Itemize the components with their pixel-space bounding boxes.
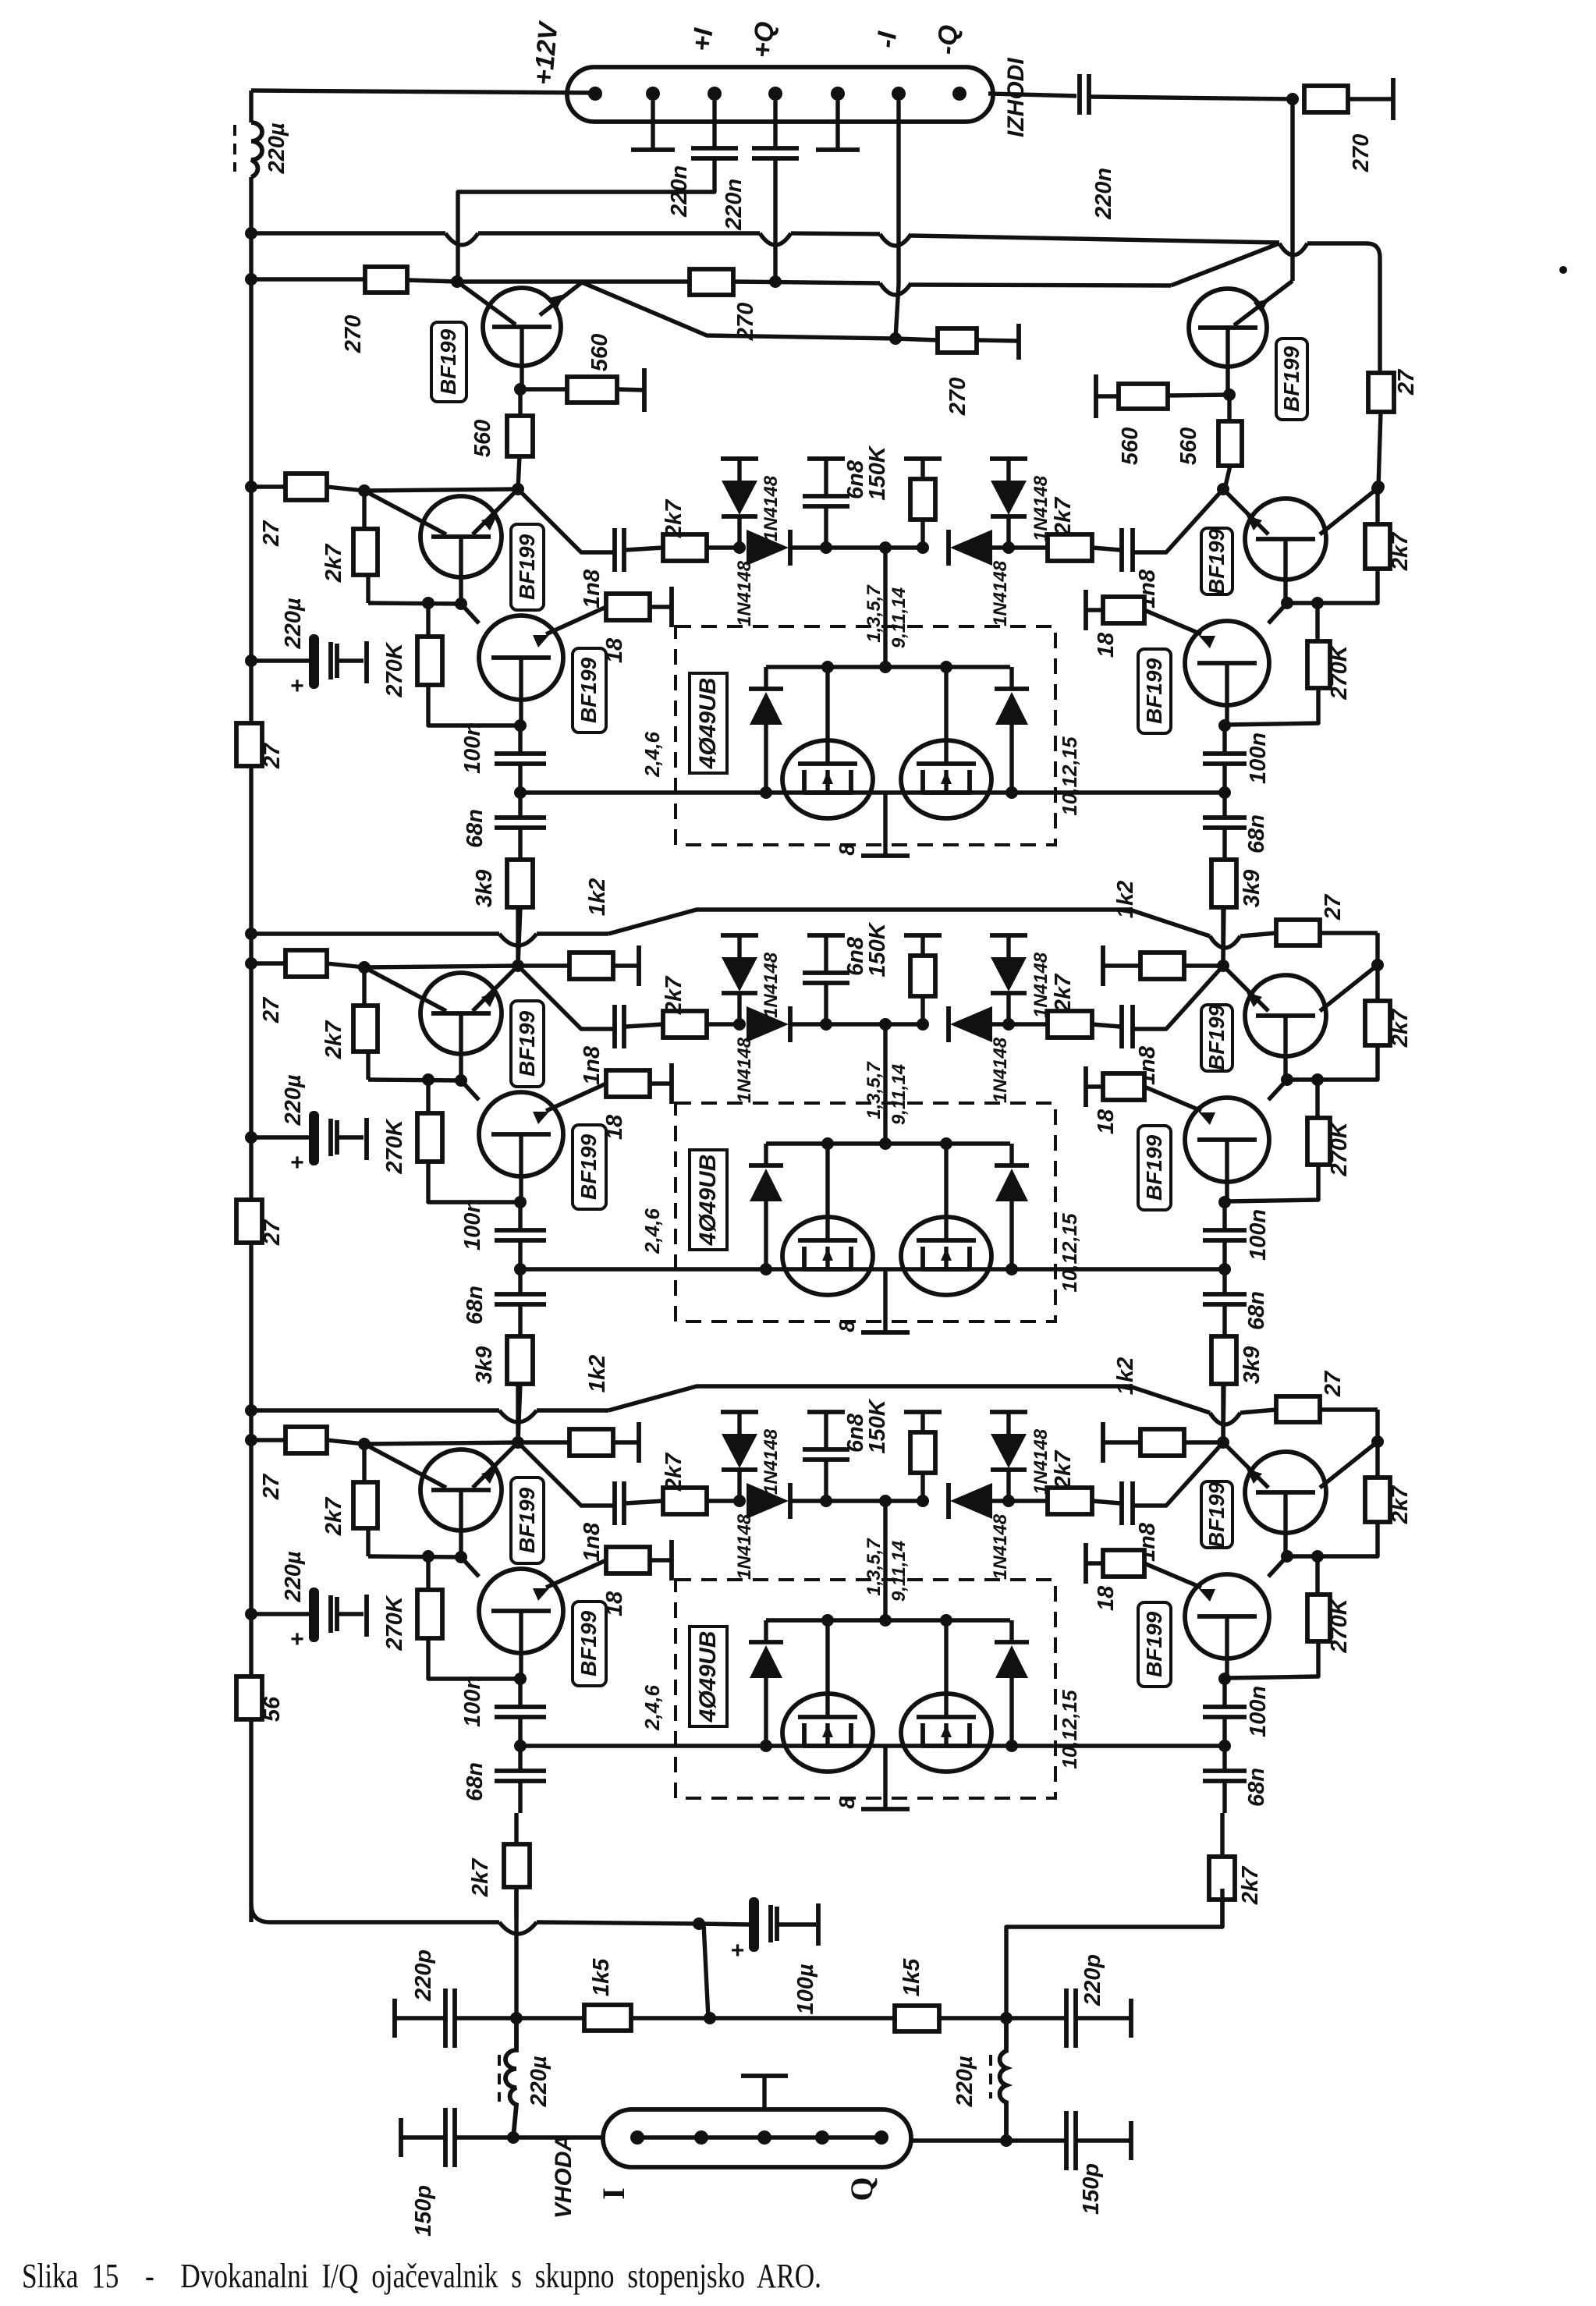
svg-text:BF199: BF199 [1142, 1135, 1166, 1201]
svg-text:1k2: 1k2 [585, 878, 610, 916]
svg-text:4Ø49UB: 4Ø49UB [695, 1631, 721, 1723]
svg-text:Slika 15 - Dvokanalni I/Q oj: Slika 15 - Dvokanalni I/Q ojačevalnik s … [22, 2257, 821, 2295]
svg-text:100n: 100n [1246, 1209, 1271, 1261]
svg-text:220µ: 220µ [527, 2056, 552, 2107]
svg-text:2k7: 2k7 [1051, 496, 1076, 536]
svg-text:220p: 220p [411, 1949, 436, 2002]
svg-text:27: 27 [260, 742, 285, 769]
svg-text:270: 270 [1349, 134, 1374, 172]
svg-text:1,3,5,7: 1,3,5,7 [864, 1061, 885, 1119]
svg-text:3k9: 3k9 [472, 870, 497, 907]
svg-text:1n8: 1n8 [580, 1522, 605, 1562]
svg-text:3k9: 3k9 [472, 1346, 497, 1384]
svg-text:220µ: 220µ [281, 598, 306, 649]
svg-text:IZHODI: IZHODI [1003, 58, 1029, 137]
svg-text:68n: 68n [1244, 814, 1269, 853]
svg-text:220µ: 220µ [264, 122, 289, 174]
svg-text:9,11,14: 9,11,14 [888, 587, 910, 648]
svg-text:270K: 270K [1327, 1120, 1352, 1176]
svg-text:220p: 220p [1080, 1954, 1105, 2006]
svg-text:270K: 270K [382, 641, 407, 697]
svg-text:8: 8 [835, 843, 859, 856]
svg-text:2k7: 2k7 [321, 1496, 346, 1536]
svg-text:8: 8 [835, 1320, 859, 1332]
svg-text:1k2: 1k2 [585, 1355, 610, 1392]
svg-text:+: + [290, 673, 304, 699]
svg-text:220µ: 220µ [281, 1074, 306, 1126]
svg-text:3k9: 3k9 [1240, 870, 1264, 907]
svg-text:560: 560 [1176, 427, 1201, 465]
svg-text:1N4148: 1N4148 [734, 1513, 755, 1580]
svg-text:8: 8 [835, 1797, 859, 1809]
svg-text:68n: 68n [463, 1286, 488, 1325]
svg-text:56: 56 [260, 1696, 285, 1722]
svg-text:270: 270 [945, 378, 970, 416]
svg-text:2,4,6: 2,4,6 [640, 732, 664, 778]
svg-text:BF199: BF199 [1142, 1612, 1166, 1677]
svg-text:BF199: BF199 [1142, 658, 1166, 724]
svg-text:270K: 270K [1327, 1597, 1352, 1653]
svg-text:1N4148: 1N4148 [990, 1037, 1011, 1103]
svg-text:1N4148: 1N4148 [1030, 475, 1052, 541]
svg-text:68n: 68n [463, 1762, 488, 1801]
svg-text:1N4148: 1N4148 [990, 560, 1011, 626]
svg-text:2k7: 2k7 [1051, 973, 1076, 1013]
svg-text:4Ø49UB: 4Ø49UB [695, 678, 721, 770]
svg-text:2k7: 2k7 [468, 1857, 493, 1897]
svg-text:2k7: 2k7 [1238, 1865, 1263, 1905]
svg-text:150K: 150K [865, 1398, 890, 1453]
svg-text:2,4,6: 2,4,6 [640, 1685, 664, 1731]
svg-text:2k7: 2k7 [1388, 1485, 1413, 1524]
svg-text:3k9: 3k9 [1240, 1346, 1264, 1384]
svg-text:BF199: BF199 [515, 1011, 539, 1077]
svg-text:+: + [290, 1150, 304, 1176]
svg-text:1k2: 1k2 [1113, 881, 1138, 918]
svg-text:1N4148: 1N4148 [1030, 952, 1052, 1018]
svg-text:270K: 270K [382, 1118, 407, 1174]
svg-text:2k7: 2k7 [661, 975, 686, 1015]
svg-text:2k7: 2k7 [1388, 531, 1413, 571]
svg-text:220n: 220n [1091, 168, 1116, 220]
svg-text:+: + [730, 1938, 744, 1964]
svg-text:150p: 150p [411, 2185, 436, 2237]
svg-text:10,12,15: 10,12,15 [1058, 1213, 1081, 1293]
svg-text:270K: 270K [382, 1595, 407, 1651]
svg-text:2k7: 2k7 [321, 543, 346, 583]
svg-text:220µ: 220µ [952, 2056, 977, 2107]
svg-text:560: 560 [1118, 427, 1143, 465]
svg-text:1N4148: 1N4148 [761, 1428, 782, 1495]
svg-text:2,4,6: 2,4,6 [640, 1208, 664, 1254]
svg-text:150p: 150p [1079, 2163, 1104, 2215]
svg-text:BF199: BF199 [436, 329, 460, 395]
svg-text:BF199: BF199 [576, 1611, 601, 1676]
svg-text:1N4148: 1N4148 [1030, 1428, 1052, 1495]
svg-text:2k7: 2k7 [1388, 1008, 1413, 1048]
svg-text:1N4148: 1N4148 [761, 475, 782, 541]
svg-text:1N4148: 1N4148 [990, 1513, 1011, 1580]
svg-text:1n8: 1n8 [580, 569, 605, 608]
svg-text:+I: +I [687, 26, 719, 52]
svg-text:68n: 68n [1244, 1768, 1269, 1807]
svg-text:BF199: BF199 [576, 658, 601, 723]
svg-text:100n: 100n [460, 1199, 485, 1251]
svg-text:1n8: 1n8 [580, 1045, 605, 1085]
svg-text:270: 270 [341, 315, 366, 353]
svg-text:1,3,5,7: 1,3,5,7 [864, 1538, 885, 1596]
svg-text:2k7: 2k7 [661, 1452, 686, 1492]
svg-text:VHODA: VHODA [551, 2134, 576, 2219]
svg-text:27: 27 [259, 520, 284, 547]
svg-text:BF199: BF199 [515, 534, 539, 600]
svg-text:100µ: 100µ [793, 1964, 818, 2014]
svg-text:150K: 150K [865, 445, 890, 500]
svg-text:+: + [290, 1627, 304, 1652]
svg-text:150K: 150K [865, 921, 890, 977]
svg-text:68n: 68n [463, 809, 488, 848]
svg-text:27: 27 [260, 1219, 285, 1246]
svg-text:BF199: BF199 [1279, 346, 1303, 412]
svg-text:1N4148: 1N4148 [761, 952, 782, 1018]
svg-text:2k7: 2k7 [1051, 1449, 1076, 1489]
svg-text:BF199: BF199 [576, 1134, 601, 1200]
svg-text:100n: 100n [460, 1676, 485, 1727]
svg-text:BF199: BF199 [515, 1488, 539, 1553]
svg-text:18: 18 [602, 637, 627, 663]
svg-text:1N4148: 1N4148 [734, 560, 755, 626]
svg-text:10,12,15: 10,12,15 [1058, 1690, 1081, 1769]
svg-text:1k2: 1k2 [1113, 1357, 1138, 1395]
svg-text:27: 27 [259, 996, 284, 1024]
svg-text:1k5: 1k5 [589, 1958, 614, 1996]
svg-text:27: 27 [1321, 1370, 1346, 1397]
svg-text:1k5: 1k5 [899, 1958, 924, 1996]
svg-text:10,12,15: 10,12,15 [1058, 736, 1081, 816]
svg-text:18: 18 [1094, 1109, 1119, 1134]
svg-text:68n: 68n [1244, 1291, 1269, 1330]
svg-text:18: 18 [602, 1114, 627, 1140]
svg-text:-Q: -Q [931, 24, 963, 56]
svg-text:220µ: 220µ [281, 1551, 306, 1602]
svg-text:560: 560 [470, 420, 495, 457]
svg-text:BF199: BF199 [1204, 529, 1229, 594]
svg-text:I: I [596, 2187, 631, 2200]
svg-text:9,11,14: 9,11,14 [888, 1064, 910, 1125]
svg-text:BF199: BF199 [1204, 1005, 1229, 1070]
svg-text:4Ø49UB: 4Ø49UB [695, 1155, 721, 1247]
svg-text:18: 18 [602, 1591, 627, 1616]
svg-text:27: 27 [1394, 368, 1419, 396]
svg-text:100n: 100n [460, 722, 485, 774]
svg-text:+12V: +12V [529, 19, 564, 87]
svg-text:+Q: +Q [747, 20, 780, 59]
svg-text:9,11,14: 9,11,14 [888, 1541, 910, 1602]
svg-text:1,3,5,7: 1,3,5,7 [864, 584, 885, 643]
svg-text:BF199: BF199 [1204, 1482, 1229, 1548]
svg-text:Q: Q [844, 2177, 879, 2201]
svg-text:100n: 100n [1246, 733, 1271, 784]
svg-text:560: 560 [587, 334, 612, 371]
svg-text:18: 18 [1094, 632, 1119, 658]
svg-text:270K: 270K [1327, 644, 1352, 700]
svg-text:27: 27 [1321, 893, 1346, 921]
svg-text:2k7: 2k7 [661, 498, 686, 538]
svg-text:27: 27 [259, 1473, 284, 1500]
svg-text:2k7: 2k7 [321, 1020, 346, 1059]
svg-text:1N4148: 1N4148 [734, 1037, 755, 1103]
svg-text:100n: 100n [1246, 1686, 1271, 1737]
svg-text:220n: 220n [722, 179, 747, 231]
svg-text:18: 18 [1094, 1585, 1119, 1611]
